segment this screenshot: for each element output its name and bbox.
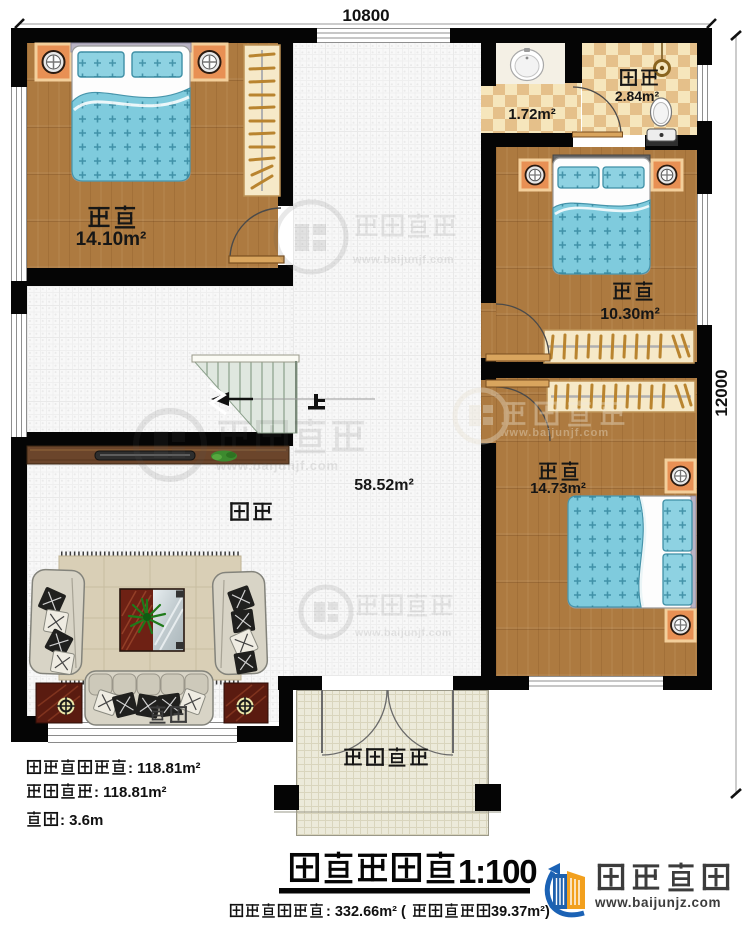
- svg-text:www.baijunjz.com: www.baijunjz.com: [594, 895, 721, 910]
- svg-text:www.baijunjf.com: www.baijunjf.com: [499, 427, 609, 439]
- svg-text:: 118.81m²: : 118.81m²: [128, 760, 201, 777]
- svg-text:58.52m²: 58.52m²: [354, 477, 414, 494]
- svg-text:12000: 12000: [712, 369, 731, 416]
- svg-text:10.30m²: 10.30m²: [600, 306, 660, 323]
- svg-text:: 332.66m² (: : 332.66m² (: [326, 904, 406, 920]
- svg-text:: 118.81m²: : 118.81m²: [94, 784, 167, 801]
- svg-text:14.73m²: 14.73m²: [530, 480, 586, 497]
- svg-text:1.72m²: 1.72m²: [508, 106, 556, 123]
- svg-text:: 3.6m: : 3.6m: [60, 812, 103, 829]
- svg-text:39.37m²): 39.37m²): [491, 904, 550, 920]
- svg-text:www.baijunjf.com: www.baijunjf.com: [215, 458, 339, 473]
- svg-text:www.baijunjf.com: www.baijunjf.com: [352, 254, 454, 266]
- svg-text:www.baijunjf.com: www.baijunjf.com: [354, 627, 452, 639]
- svg-text:10800: 10800: [342, 6, 389, 25]
- svg-text:2.84m²: 2.84m²: [615, 88, 660, 104]
- svg-text:1:100: 1:100: [458, 853, 536, 890]
- svg-text:14.10m²: 14.10m²: [76, 229, 147, 250]
